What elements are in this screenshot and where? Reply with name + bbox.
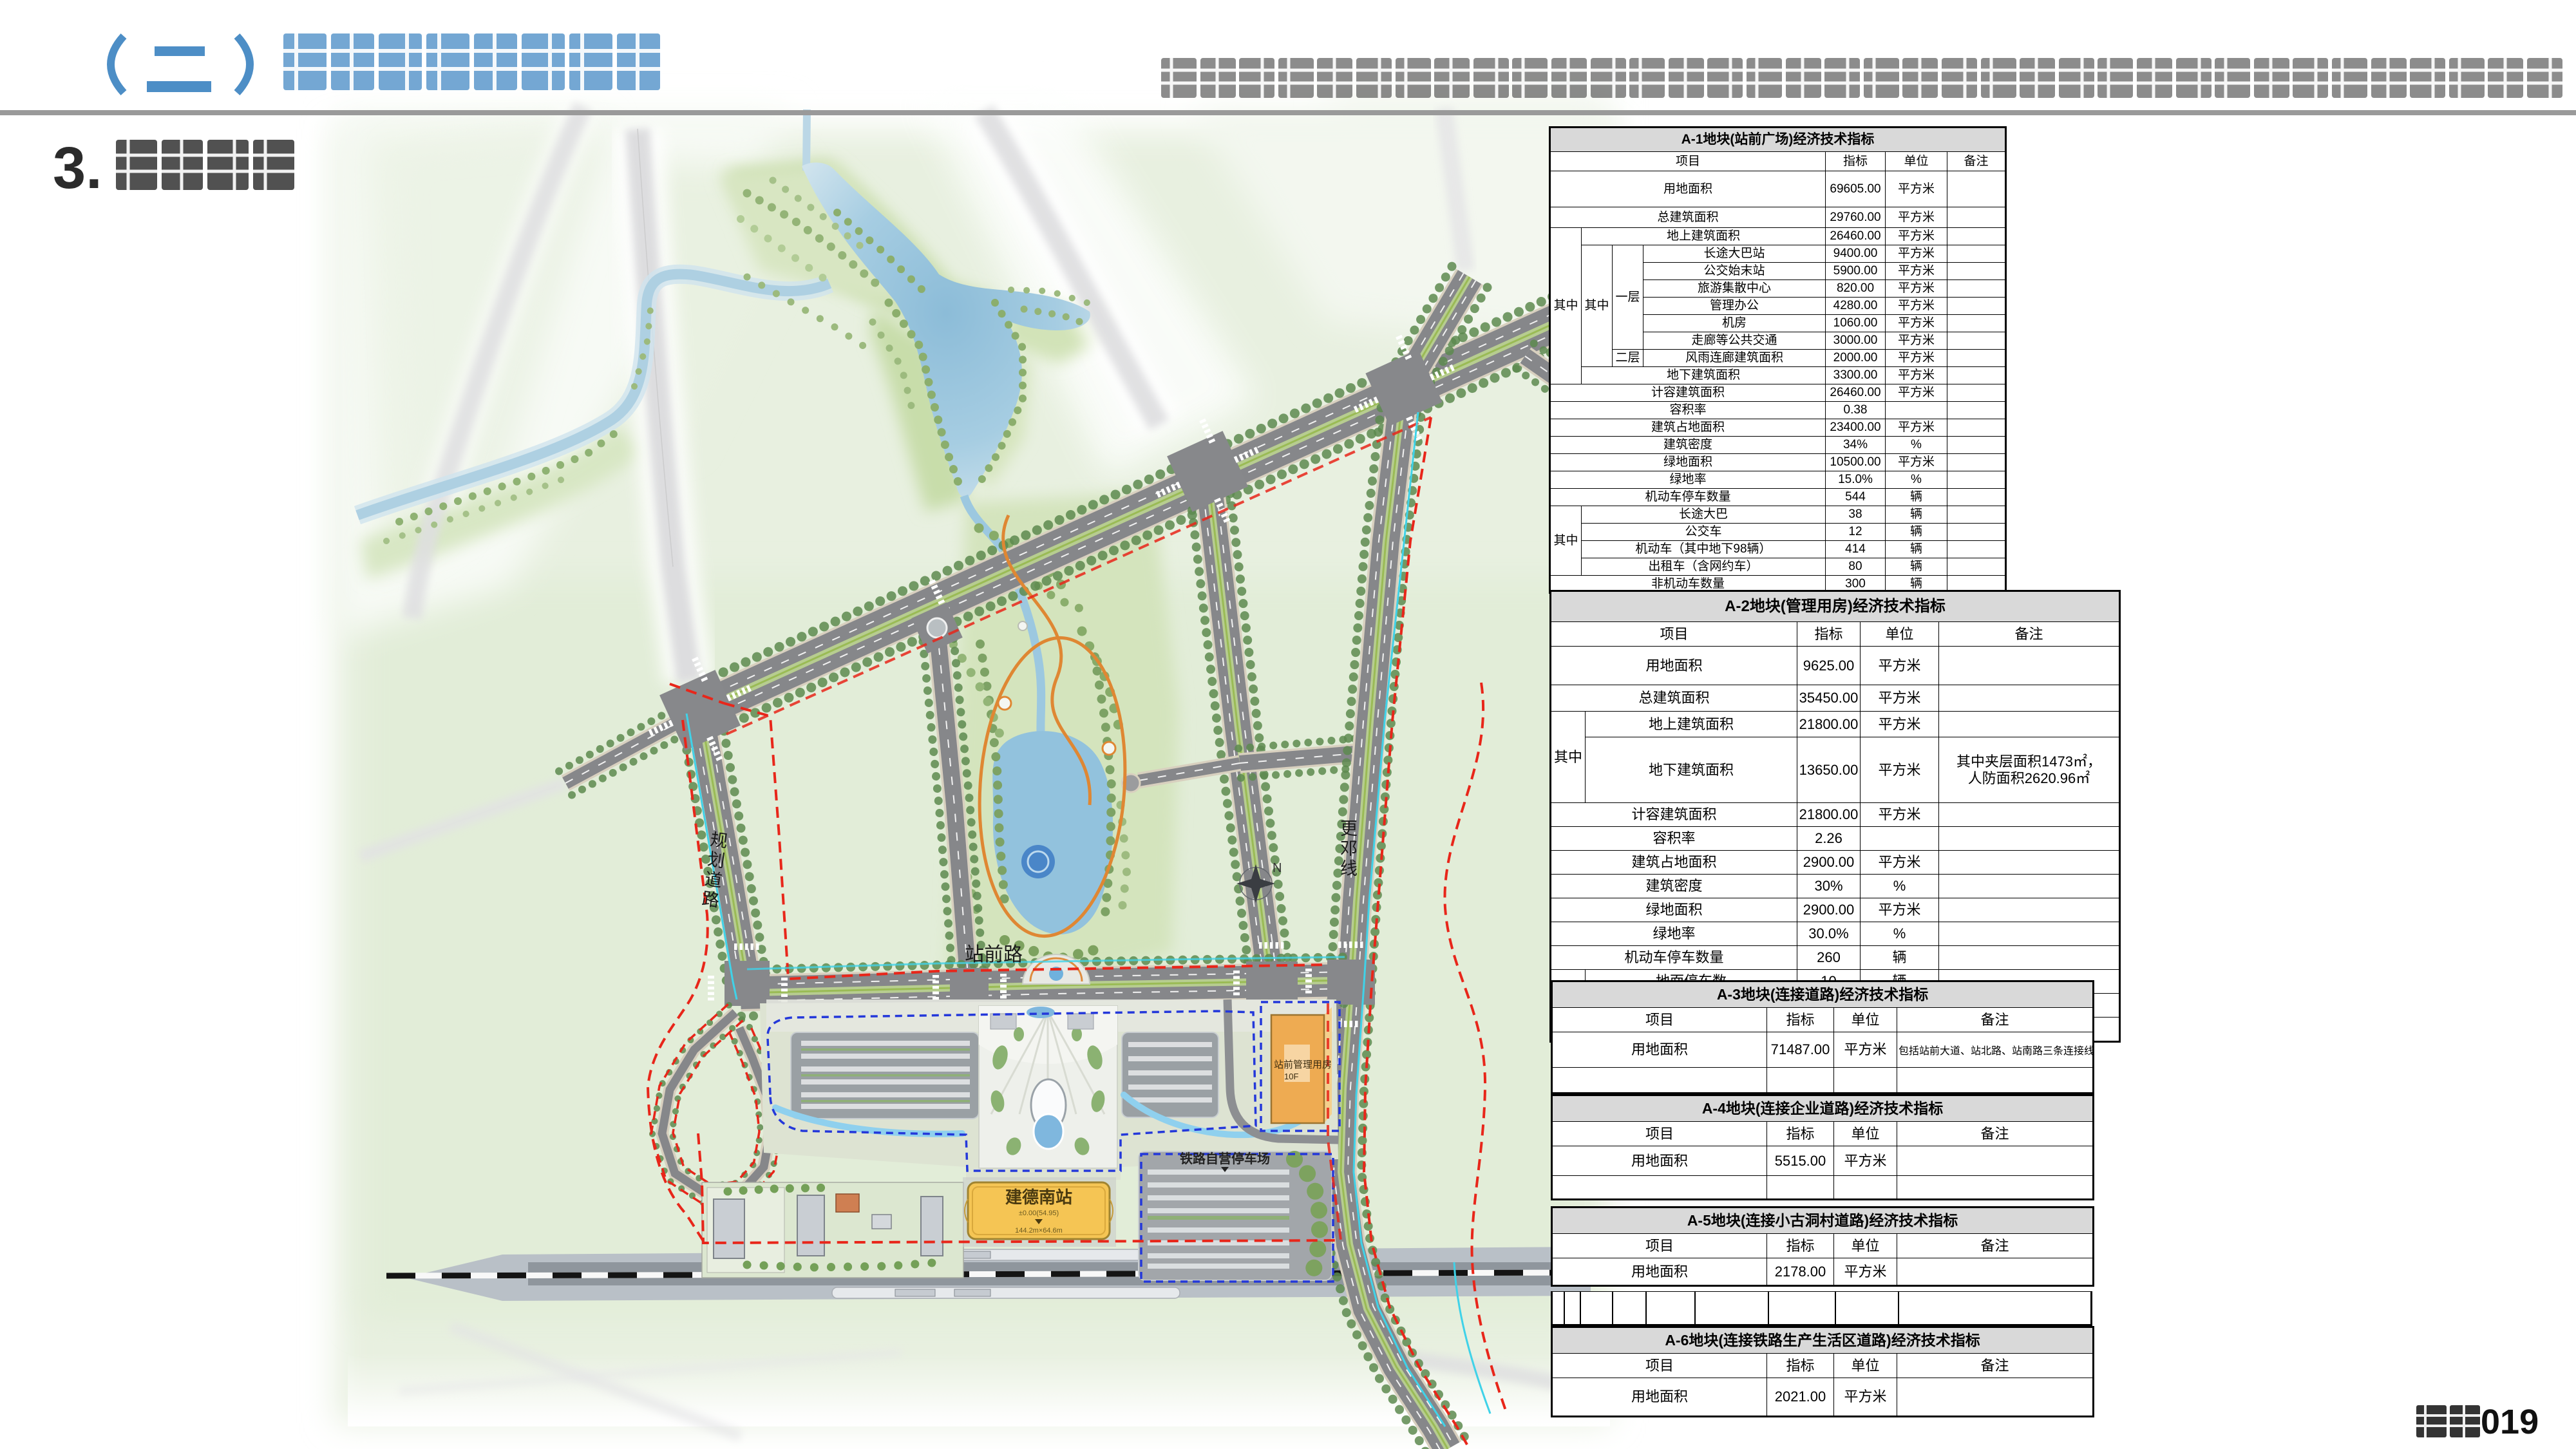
svg-text:019: 019	[2481, 1403, 2539, 1441]
svg-text:3.: 3.	[53, 135, 102, 201]
